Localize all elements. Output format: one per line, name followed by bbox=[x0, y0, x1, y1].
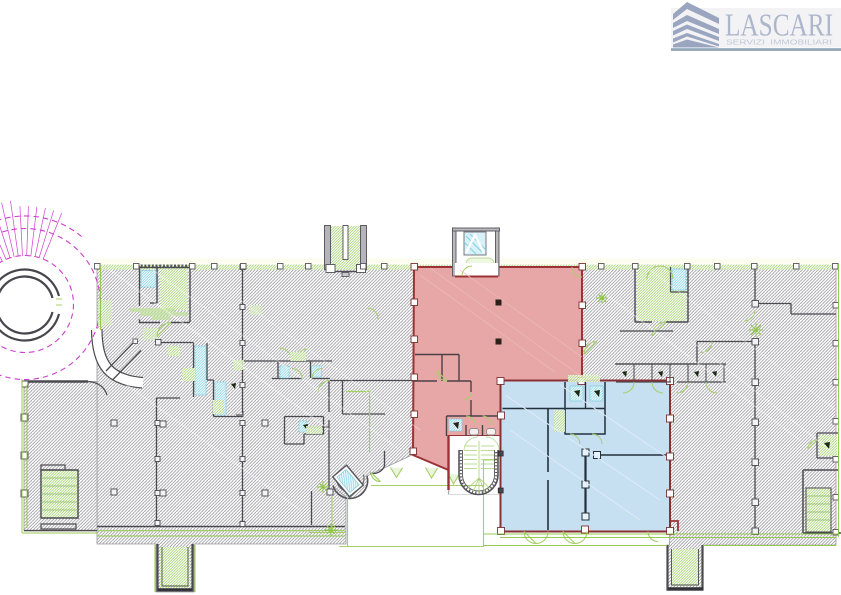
svg-text:SERVIZI IMMOBILIARI: SERVIZI IMMOBILIARI bbox=[726, 40, 832, 47]
svg-text:LASCARI: LASCARI bbox=[725, 7, 833, 43]
